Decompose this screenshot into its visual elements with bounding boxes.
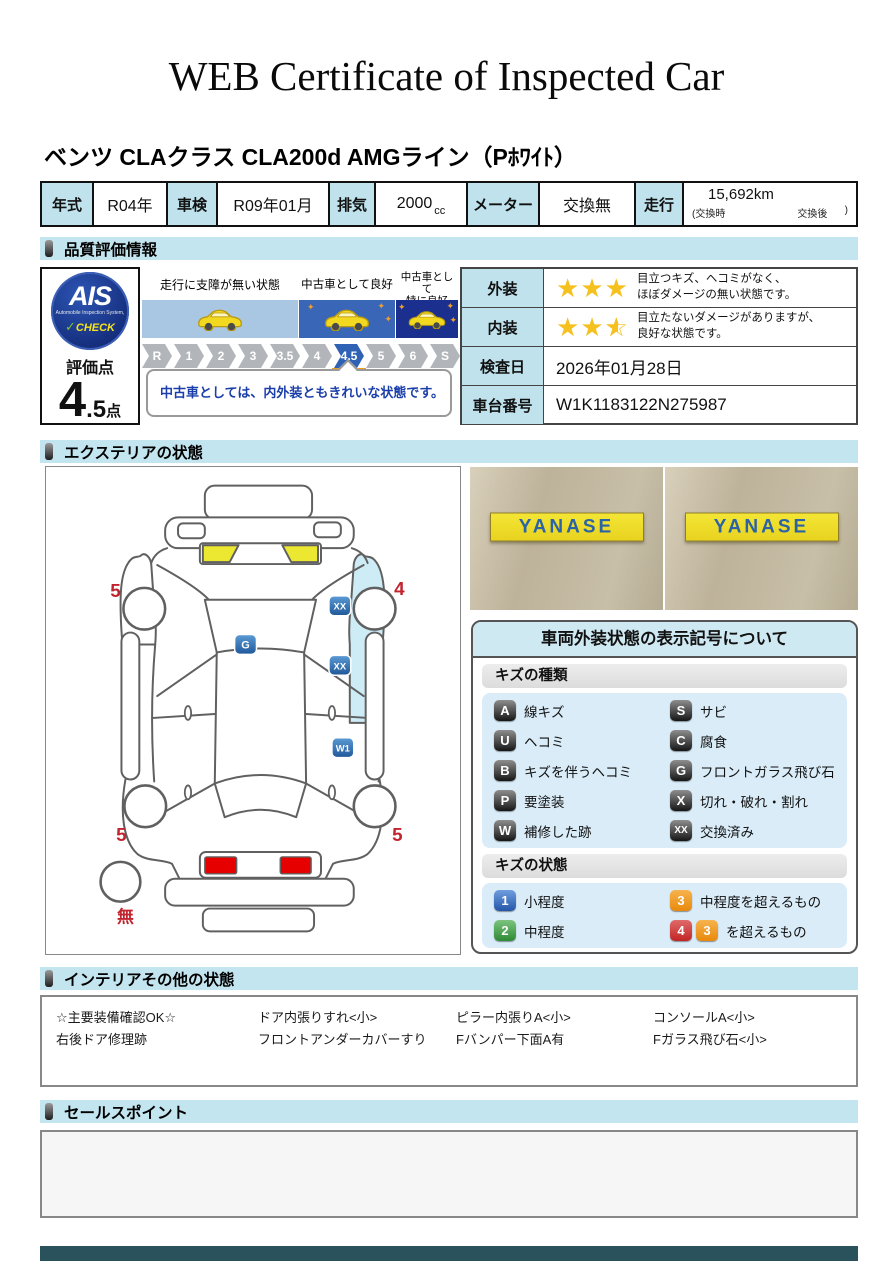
front-right-wheel	[354, 588, 396, 630]
interior-note: コンソールA<小>	[653, 1007, 755, 1026]
sparkle-icon: ✦	[307, 302, 315, 313]
score-integer: 4	[59, 378, 86, 422]
band-label-line1: 中古車として	[396, 271, 458, 295]
legend-item: Bキズを伴うヘコミ	[494, 760, 670, 781]
exterior-comment: 目立つキズ、ヘコミがなく、 ほぼダメージの無い状態です。	[637, 272, 796, 303]
scale-tick-S: S	[430, 344, 460, 368]
table-row-inspection-date: 検査日 2026年01月28日	[462, 347, 856, 386]
certificate-page: WEB Certificate of Inspected Car ベンツ CLA…	[0, 0, 893, 1263]
code-U-icon: U	[494, 730, 516, 751]
vin-label: 車台番号	[462, 386, 544, 424]
mileage-note-close: )	[845, 205, 848, 220]
damage-badge-right-fender-code: XX	[334, 601, 347, 612]
interior-note: フロントアンダーカバーすり	[258, 1029, 426, 1048]
section-header-interior: インテリアその他の状態	[40, 967, 858, 990]
legend-item: 2中程度	[494, 920, 670, 941]
sparkle-icon: ✦	[398, 302, 406, 313]
damage-badge-windshield-code: G	[241, 639, 249, 651]
interior-comment: 目立たないダメージがありますが、 良好な状態です。	[637, 311, 820, 342]
scale-tick-1: 1	[174, 344, 204, 368]
tire-rear-right-value: 5	[392, 824, 402, 845]
band-fill: ✦ ✦ ✦	[299, 300, 395, 338]
interior-comment-line2: 良好な状態です。	[637, 327, 820, 343]
vehicle-info-table: 年式 R04年 車検 R09年01月 排気 2000 cc メーター 交換無 走…	[40, 181, 858, 227]
band-label: 走行に支障が無い状態	[142, 267, 298, 300]
star-icon: ★	[580, 273, 604, 303]
mileage-label: 走行	[636, 183, 684, 225]
severity-1-icon: 1	[494, 890, 516, 911]
section-title: 品質評価情報	[64, 238, 157, 260]
interior-note: ピラー内張りA<小>	[456, 1007, 571, 1026]
code-G-icon: G	[670, 760, 692, 781]
legend-kind-grid: A線キズ Sサビ Uヘコミ C腐食 Bキズを伴うヘコミ Gフロントガラス飛び石 …	[482, 693, 847, 848]
displacement-unit: cc	[434, 205, 445, 217]
rear-plate	[203, 909, 314, 932]
scale-band-good: 中古車として良好 ✦ ✦ ✦	[299, 267, 395, 338]
right-tail-light	[280, 857, 311, 874]
section-accent-icon	[45, 970, 53, 987]
ais-check-row: ✓CHECK	[51, 319, 129, 335]
code-C-icon: C	[670, 730, 692, 751]
shaken-label: 車検	[168, 183, 218, 225]
star-icon: ★	[605, 273, 629, 303]
legend-item-label: ヘコミ	[524, 731, 565, 751]
legend-title: 車両外装状態の表示記号について	[473, 622, 856, 658]
band-label: 中古車として良好	[299, 267, 395, 300]
legend-item-label: 中程度を超えるもの	[700, 891, 821, 911]
code-W-icon: W	[494, 820, 516, 841]
star-icon: ★	[556, 273, 580, 303]
code-X-icon: X	[670, 790, 692, 811]
severity-2-icon: 2	[494, 920, 516, 941]
left-tail-light	[205, 857, 237, 874]
scale-tick-3: 3	[238, 344, 268, 368]
evaluation-comment: 中古車としては、内外装ともきれいな状態です。	[148, 371, 450, 415]
displacement-value: 2000 cc	[376, 183, 468, 225]
scale-tick-3-5: 3.5	[270, 344, 300, 368]
sparkle-icon: ✦	[377, 301, 385, 312]
exterior-rating: ★★★ 目立つキズ、ヘコミがなく、 ほぼダメージの無い状態です。	[544, 269, 856, 307]
exterior-comment-line1: 目立つキズ、ヘコミがなく、	[637, 272, 796, 288]
score-value: 4 .5 点	[42, 378, 138, 422]
legend-item-label: 切れ・破れ・割れ	[700, 791, 808, 811]
displacement-number: 2000	[397, 195, 433, 213]
legend-item-label: 腐食	[700, 731, 727, 751]
exterior-stars: ★★★	[556, 275, 629, 301]
score-decimal: .5	[86, 398, 106, 422]
vin-value: W1K1183122N275987	[544, 386, 856, 424]
legend-item-label: 要塗装	[524, 791, 565, 811]
spare-tire	[101, 862, 141, 902]
interior-condition-box: ☆主要装備確認OK☆ ドア内張りすれ<小> ピラー内張りA<小> コンソールA<…	[40, 995, 858, 1087]
damage-badge-right-rear-door-code: W1	[336, 743, 350, 754]
legend-kind-header: キズの種類	[482, 664, 847, 688]
exterior-photo-2: YANASE	[665, 467, 858, 610]
legend-item-label: キズを伴うヘコミ	[524, 761, 632, 781]
scale-band-normal: 走行に支障が無い状態	[142, 267, 298, 338]
table-row-vin: 車台番号 W1K1183122N275987	[462, 386, 856, 424]
legend-item-label: 中程度	[524, 921, 565, 941]
legend-item: X切れ・破れ・割れ	[670, 790, 835, 811]
car-icon	[406, 309, 448, 329]
interior-note: Fガラス飛び石<小>	[653, 1029, 767, 1048]
legend-item: Gフロントガラス飛び石	[670, 760, 835, 781]
car-top-view-diagram: 5 4 5 5 無 G XX XX W1	[46, 467, 459, 953]
sparkle-icon: ✦	[384, 314, 392, 325]
legend-item-label: 小程度	[524, 891, 565, 911]
rear-right-wheel	[354, 785, 396, 827]
section-accent-icon	[45, 240, 53, 257]
interior-note: Fバンパー下面A有	[456, 1029, 564, 1048]
scale-tick-2: 2	[206, 344, 236, 368]
scale-tick-R: R	[142, 344, 172, 368]
spare-tire-none-label: 無	[117, 906, 134, 926]
interior-rating: ★★★☆ 目立たないダメージがありますが、 良好な状態です。	[544, 308, 856, 346]
scale-tick-6: 6	[398, 344, 428, 368]
footer-bar	[40, 1246, 858, 1261]
mileage-value-cell: 15,692km (交換時 交換後 )	[684, 183, 856, 225]
yanase-sign: YANASE	[490, 513, 644, 542]
year-label: 年式	[42, 183, 94, 225]
band-fill: ✦ ✦ ✦	[396, 300, 458, 338]
front-plate	[205, 486, 312, 520]
legend-item: C腐食	[670, 730, 835, 751]
sparkle-icon: ✦	[446, 301, 454, 312]
interior-note: 右後ドア修理跡	[56, 1029, 147, 1048]
interior-note: ☆主要装備確認OK☆	[56, 1007, 176, 1026]
scale-band-excellent: 中古車として 特に良好 ✦ ✦ ✦	[396, 267, 458, 338]
ais-check-label: CHECK	[76, 322, 115, 334]
rear-window	[215, 775, 306, 817]
section-header-sales-point: セールスポイント	[40, 1100, 858, 1123]
vehicle-name: ベンツ CLAクラス CLA200d AMGライン（Pﾎﾜｲﾄ）	[44, 138, 577, 172]
legend-item: 43を超えるもの	[670, 920, 835, 941]
section-title: エクステリアの状態	[64, 441, 203, 463]
code-B-icon: B	[494, 760, 516, 781]
code-XX-icon: XX	[670, 820, 692, 841]
section-header-quality: 品質評価情報	[40, 237, 858, 260]
ais-logo: AIS Automobile Inspection System, ✓CHECK	[51, 272, 129, 350]
ais-score-panel: AIS Automobile Inspection System, ✓CHECK…	[40, 267, 140, 425]
code-S-icon: S	[670, 700, 692, 721]
legend-state-grid: 1小程度 3中程度を超えるもの 2中程度 43を超えるもの	[482, 883, 847, 948]
legend-item: 1小程度	[494, 890, 670, 911]
front-left-wheel	[123, 588, 165, 630]
page-title: WEB Certificate of Inspected Car	[0, 52, 893, 100]
mileage-note-mid: 交換後	[797, 205, 827, 220]
tire-front-right-value: 4	[394, 578, 405, 599]
severity-4-icon: 4	[670, 920, 692, 941]
meter-label: メーター	[468, 183, 540, 225]
half-star-fill: ★	[605, 314, 618, 340]
score-unit: 点	[106, 401, 121, 422]
legend-item-label: フロントガラス飛び石	[700, 761, 835, 781]
scale-tick-4: 4	[302, 344, 332, 368]
legend-item: P要塗装	[494, 790, 670, 811]
legend-item-label: サビ	[700, 701, 727, 721]
section-accent-icon	[45, 1103, 53, 1120]
displacement-label: 排気	[330, 183, 376, 225]
car-damage-diagram: 5 4 5 5 無 G XX XX W1	[45, 466, 461, 955]
section-header-exterior: エクステリアの状態	[40, 440, 858, 463]
check-icon: ✓	[65, 319, 76, 334]
damage-legend-panel: 車両外装状態の表示記号について キズの種類 A線キズ Sサビ Uヘコミ C腐食 …	[471, 620, 858, 954]
shaken-value: R09年01月	[218, 183, 330, 225]
legend-item-label: 補修した跡	[524, 821, 592, 841]
exterior-comment-line2: ほぼダメージの無い状態です。	[637, 288, 796, 304]
evaluation-comment-box: 中古車としては、内外装ともきれいな状態です。	[146, 369, 452, 417]
interior-comment-line1: 目立たないダメージがありますが、	[637, 311, 820, 327]
interior-note: ドア内張りすれ<小>	[258, 1007, 377, 1026]
rating-scale: R 1 2 3 3.5 4 4.5 5 6 S	[142, 344, 462, 368]
band-label: 中古車として 特に良好	[396, 267, 458, 300]
legend-item: Uヘコミ	[494, 730, 670, 751]
exterior-photo-1: YANASE	[470, 467, 663, 610]
legend-state-header: キズの状態	[482, 854, 847, 878]
inspection-date-label: 検査日	[462, 347, 544, 385]
code-P-icon: P	[494, 790, 516, 811]
legend-item: W補修した跡	[494, 820, 670, 841]
star-icon: ★	[556, 312, 580, 342]
rear-bumper	[165, 879, 354, 906]
table-row-exterior: 外装 ★★★ 目立つキズ、ヘコミがなく、 ほぼダメージの無い状態です。	[462, 269, 856, 308]
tire-front-left-value: 5	[110, 580, 121, 601]
scale-tick-5: 5	[366, 344, 396, 368]
table-row-interior: 内装 ★★★☆ 目立たないダメージがありますが、 良好な状態です。	[462, 308, 856, 347]
sales-point-box	[40, 1130, 858, 1218]
legend-item: 3中程度を超えるもの	[670, 890, 835, 911]
interior-stars: ★★★☆	[556, 314, 629, 340]
legend-item: XX交換済み	[670, 820, 835, 841]
right-sill	[366, 633, 384, 780]
legend-item: Sサビ	[670, 700, 835, 721]
legend-item-label: 線キズ	[524, 701, 565, 721]
exterior-label: 外装	[462, 269, 544, 307]
car-icon	[322, 307, 372, 331]
ais-logo-subtext: Automobile Inspection System,	[51, 310, 129, 316]
sparkle-icon: ✦	[449, 315, 457, 326]
yanase-sign: YANASE	[685, 513, 839, 542]
inspection-date-value: 2026年01月28日	[544, 347, 856, 385]
damage-badge-right-door-code: XX	[334, 660, 347, 671]
ais-logo-text: AIS	[51, 272, 129, 312]
rating-scale-panel: 走行に支障が無い状態 中古車として良好 ✦ ✦ ✦ 中古車として 特に良好 ✦ …	[142, 267, 458, 425]
rear-left-wheel	[124, 785, 166, 827]
windshield	[205, 600, 316, 653]
code-A-icon: A	[494, 700, 516, 721]
interior-label: 内装	[462, 308, 544, 346]
year-value: R04年	[94, 183, 168, 225]
half-star-icon: ★☆	[605, 314, 629, 340]
score-label: 評価点	[42, 354, 138, 378]
legend-item: A線キズ	[494, 700, 670, 721]
meter-value: 交換無	[540, 183, 636, 225]
band-fill	[142, 300, 298, 338]
severity-3-icon: 3	[670, 890, 692, 911]
section-title: インテリアその他の状態	[64, 968, 235, 990]
severity-3-icon: 3	[696, 920, 718, 941]
mileage-note-open: (交換時	[692, 205, 725, 220]
mileage-value: 15,692km	[692, 186, 848, 203]
tire-rear-left-value: 5	[116, 824, 127, 845]
left-sill	[121, 633, 139, 780]
legend-item-label: を超えるもの	[726, 921, 807, 941]
car-icon	[195, 307, 245, 331]
section-title: セールスポイント	[64, 1101, 188, 1123]
star-icon: ★	[580, 312, 604, 342]
evaluation-table: 外装 ★★★ 目立つキズ、ヘコミがなく、 ほぼダメージの無い状態です。 内装 ★…	[460, 267, 858, 425]
mileage-note: (交換時 交換後 )	[692, 205, 848, 220]
legend-item-label: 交換済み	[700, 821, 754, 841]
section-accent-icon	[45, 443, 53, 460]
